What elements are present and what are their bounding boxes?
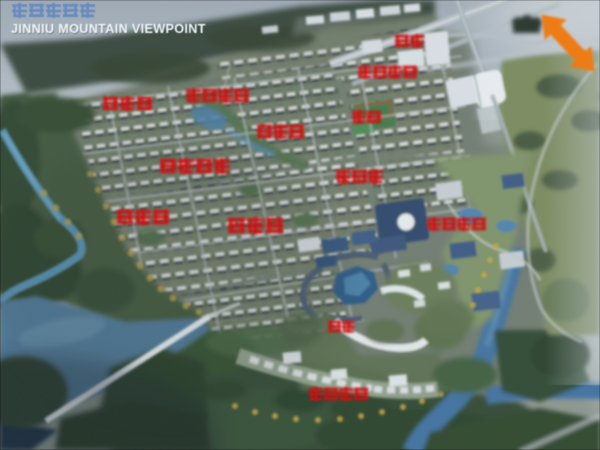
svg-text:JINNIU MOUNTAIN VIEWPOINT: JINNIU MOUNTAIN VIEWPOINT [11, 22, 206, 36]
